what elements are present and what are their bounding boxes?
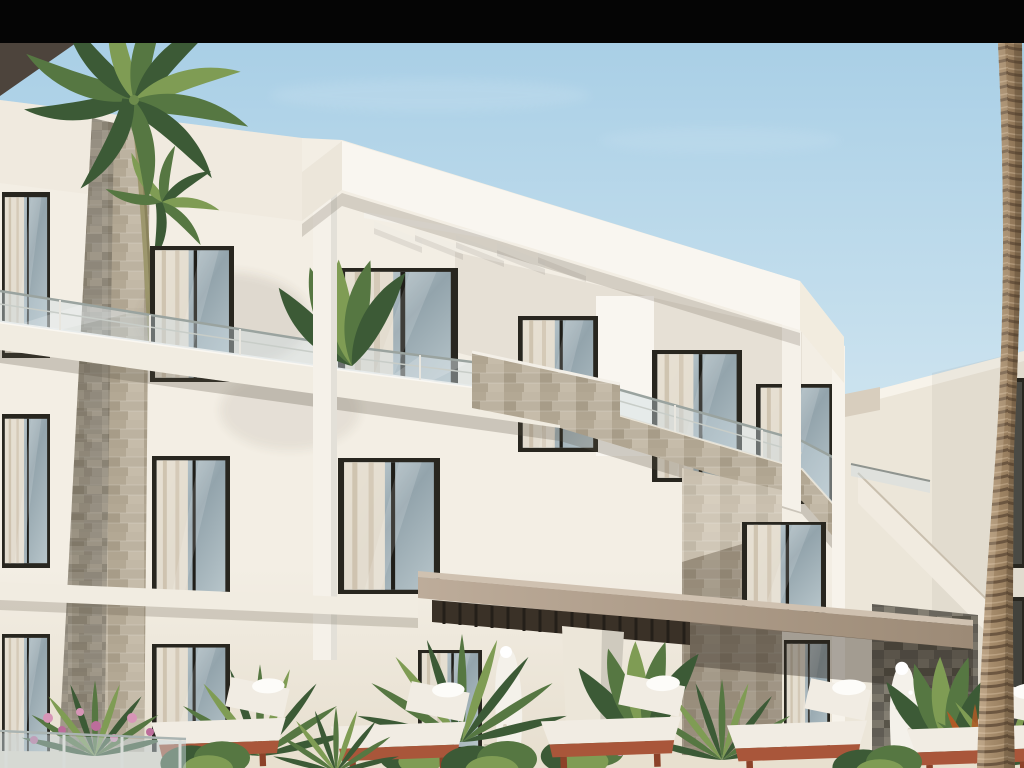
window: [2, 414, 50, 568]
window: [152, 456, 230, 596]
cloud: [270, 79, 590, 111]
letterbox-top-bar: [0, 0, 1024, 43]
cloud: [600, 127, 840, 153]
window: [742, 522, 826, 614]
render-canvas: [0, 0, 1024, 768]
column: [313, 180, 337, 660]
architectural-render-image: [0, 0, 1024, 768]
